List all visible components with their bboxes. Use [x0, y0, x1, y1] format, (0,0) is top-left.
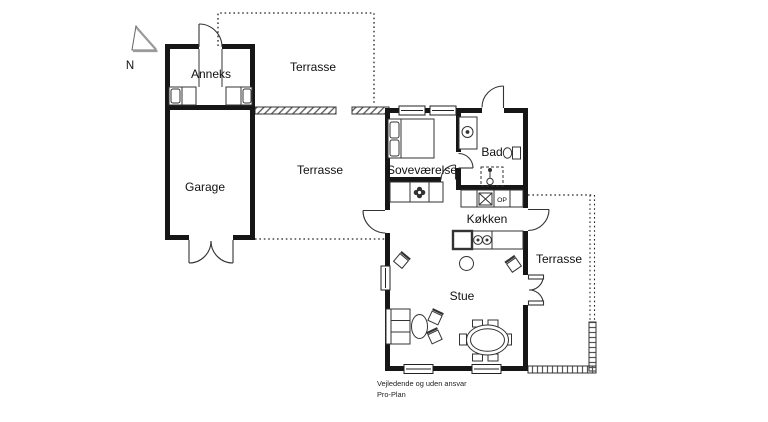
entrance-door [482, 86, 504, 108]
north-arrow-icon [132, 26, 158, 51]
bad-room-label: Bad [481, 145, 502, 159]
dining-table-inner [471, 329, 505, 352]
op-label: OP [497, 197, 507, 204]
window-stue-south-2 [472, 365, 501, 374]
bed-double [388, 119, 434, 158]
brand-text: Pro-Plan [377, 390, 406, 399]
garage-room-label: Garage [185, 180, 225, 194]
disclaimer-text: Vejledende og uden ansvar [377, 379, 467, 388]
dining-set [460, 320, 512, 361]
dining-chair [473, 354, 483, 361]
window-bedroom-2 [430, 106, 456, 115]
window-bedroom-1 [399, 106, 425, 115]
window-stue-west [381, 266, 390, 290]
garage-door [189, 240, 233, 263]
window-stue-south-1 [404, 365, 433, 374]
pergola-strip-right [352, 107, 389, 114]
sofa [386, 309, 410, 344]
terrace-east-label: Terrasse [536, 252, 582, 266]
washbasin-unit [459, 117, 477, 149]
coffee-table [412, 315, 428, 339]
door-kitchen-terrace [528, 210, 549, 231]
stove-icon [479, 193, 492, 205]
terrace-west-label: Terrasse [297, 163, 343, 177]
north-label: N [126, 60, 134, 72]
koekken-room-label: Køkken [467, 212, 508, 226]
door-west-terrace [363, 211, 386, 234]
door-bathroom [459, 154, 474, 169]
lounge-chair-2 [505, 256, 522, 273]
pergola-strip-left [255, 107, 336, 114]
shower-icon [481, 167, 503, 186]
door-french-stue [529, 275, 544, 305]
bed-single-right [226, 87, 252, 105]
stue-room-label: Stue [450, 289, 475, 303]
lounge-chair-4 [427, 328, 443, 344]
terrace-east-outline [528, 195, 596, 373]
floor-plan-page: N Terrasse Terrasse Terrasse [0, 0, 768, 422]
lounge-chair-3 [427, 309, 443, 325]
sovevaerelse-room-label: Soveværelse [387, 163, 457, 177]
plank-edge-south [528, 366, 596, 373]
dining-chair [460, 334, 467, 345]
floor-plan-drawing: N Terrasse Terrasse Terrasse [0, 0, 768, 422]
plank-edge-east [589, 322, 596, 371]
bed-single-left [169, 87, 196, 105]
lounge-chair-1 [393, 252, 410, 269]
side-table [460, 257, 474, 271]
toilet-icon [503, 147, 520, 159]
terrace-north-label: Terrasse [290, 60, 336, 74]
anneks-room-label: Anneks [191, 67, 231, 81]
